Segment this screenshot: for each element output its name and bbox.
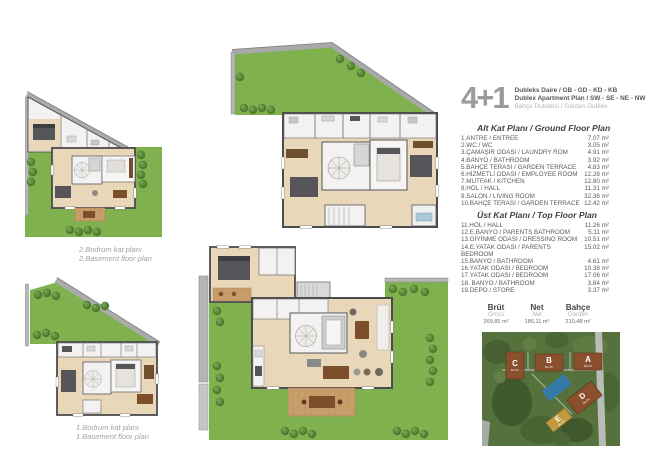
unit-header: 4+1 Dubleks Daire / GB - GD - KD - KB Du… bbox=[461, 84, 645, 111]
furniture bbox=[61, 370, 76, 392]
building bbox=[252, 298, 393, 389]
building bbox=[56, 342, 158, 416]
unit-line-en: Dublex Apartment Plan / SW - SE - NE - N… bbox=[515, 95, 646, 103]
room-row: 16.YATAK ODASI / BEDROOM10.38 m² bbox=[461, 265, 609, 272]
block-c-label: C bbox=[512, 359, 518, 368]
block-a-label: A bbox=[585, 355, 591, 364]
room-row: 6.HİZMETLİ ODASI / EMPLOYEE ROOM12.28 m² bbox=[461, 171, 609, 178]
room-row: 1.ANTRE / ENTREE7.07 m² bbox=[461, 135, 609, 142]
room-row: 17.YATAK ODASI / BEDROOM17.06 m² bbox=[461, 272, 609, 279]
elevator bbox=[89, 158, 100, 171]
room-row: 13.GİYİNME ODASI / DRESSING ROOM10.51 m² bbox=[461, 236, 609, 243]
block-b-sub: BLOK bbox=[545, 365, 553, 369]
bathtub bbox=[416, 213, 432, 221]
elevator bbox=[354, 144, 369, 166]
terrace-deck bbox=[75, 208, 105, 221]
caption-line: 1.Bodrum kat planı bbox=[76, 423, 149, 432]
room-row: 5.BAHÇE TERASI / GARDEN TERRACE4.83 m² bbox=[461, 164, 609, 171]
room-row: 7.MUTFAK / KITCHEN12.80 m² bbox=[461, 178, 609, 185]
room-row: 18. BANYO / BATHROOM3.84 m² bbox=[461, 280, 609, 287]
floorplan-basement-1 bbox=[25, 262, 200, 422]
caption-basement-2: 2.Bodrum kat planı 2.Basement floor plan bbox=[79, 245, 152, 263]
room-row: 14.E.YATAK ODASI / PARENTS BEDROOM15.02 … bbox=[461, 244, 609, 258]
bed bbox=[410, 155, 432, 177]
upper-rooms bbox=[28, 97, 125, 152]
coffee-table bbox=[355, 321, 369, 339]
caption-basement-1: 1.Bodrum kat planı 1.Basement floor plan bbox=[76, 423, 149, 441]
block-c: C BLOK bbox=[506, 352, 524, 379]
room-row: 11.HOL / HALL11.26 m² bbox=[461, 222, 609, 229]
block-b-label: B bbox=[546, 356, 552, 365]
summary-garden: Bahçe Garden 210,48 m² bbox=[561, 303, 595, 326]
block-c-sub: BLOK bbox=[511, 368, 519, 372]
furniture bbox=[55, 186, 71, 198]
unit-type: 4+1 bbox=[461, 84, 508, 111]
top-floor-room-list: 11.HOL / HALL11.26 m² 12.E.BANYO / PAREN… bbox=[461, 222, 609, 294]
unit-line-tr: Dubleks Daire / GB - GD - KD - KB bbox=[515, 87, 646, 95]
garden-area bbox=[235, 43, 436, 115]
room-row: 15.BANYO / BATHROOM4.61 m² bbox=[461, 258, 609, 265]
bed bbox=[290, 177, 318, 197]
ground-floor-title: Alt Kat Planı / Ground Floor Plan bbox=[477, 123, 610, 133]
building bbox=[51, 148, 136, 209]
block-a: A BLOK bbox=[574, 353, 602, 370]
site-plan-aerial: C BLOK B BLOK A BLOK D BLOK E BLOK bbox=[482, 332, 620, 446]
floor-plan-sheet: 2.Bodrum kat planı 2.Basement floor plan bbox=[0, 0, 660, 466]
ground-floor-room-list: 1.ANTRE / ENTREE7.07 m² 2.WC / WC3.05 m²… bbox=[461, 135, 609, 207]
unit-header-lines: Dubleks Daire / GB - GD - KD - KB Dublex… bbox=[515, 84, 646, 111]
area-summary: Brüt Gross 269,85 m² Net Net 186,11 m² B… bbox=[479, 303, 595, 326]
summary-gross: Brüt Gross 269,85 m² bbox=[479, 303, 513, 326]
floorplan-basement-2 bbox=[25, 40, 195, 240]
floorplan-ground-floor bbox=[187, 226, 457, 444]
caption-line: 1.Basement floor plan bbox=[76, 432, 149, 441]
block-a-sub: BLOK bbox=[584, 364, 592, 368]
retaining-wall bbox=[25, 284, 29, 346]
top-floor-title: Üst Kat Planı / Top Floor Plan bbox=[477, 210, 597, 220]
room-row: 2.WC / WC3.05 m² bbox=[461, 142, 609, 149]
room-row: 9.SALON / LIVING ROOM32.36 m² bbox=[461, 193, 609, 200]
room-row: 3.ÇAMAŞIR ODASI / LAUNDRY ROM4.91 m² bbox=[461, 149, 609, 156]
side-deck bbox=[213, 288, 251, 301]
dining-table bbox=[323, 366, 349, 379]
caption-line: 2.Bodrum kat planı bbox=[79, 245, 152, 254]
room-row: 10.BAHÇE TERASI / GARDEN TERRACE12.42 m² bbox=[461, 200, 609, 207]
garden-deck bbox=[288, 388, 355, 416]
unit-line-sub: Bahçe Dubleksi / Garden Dublex bbox=[515, 103, 646, 111]
room-row: 4.BANYO / BATHROOM3.92 m² bbox=[461, 157, 609, 164]
outdoor-table bbox=[309, 396, 335, 408]
block-b: B BLOK bbox=[535, 354, 563, 371]
floorplan-top-floor bbox=[230, 37, 455, 232]
room-row: 8.HOL / HALL11.31 m² bbox=[461, 185, 609, 192]
sofa bbox=[377, 305, 389, 350]
summary-net: Net Net 186,11 m² bbox=[520, 303, 554, 326]
room-row: 19.DEPO / STORE3.37 m² bbox=[461, 287, 609, 294]
building bbox=[282, 113, 438, 228]
